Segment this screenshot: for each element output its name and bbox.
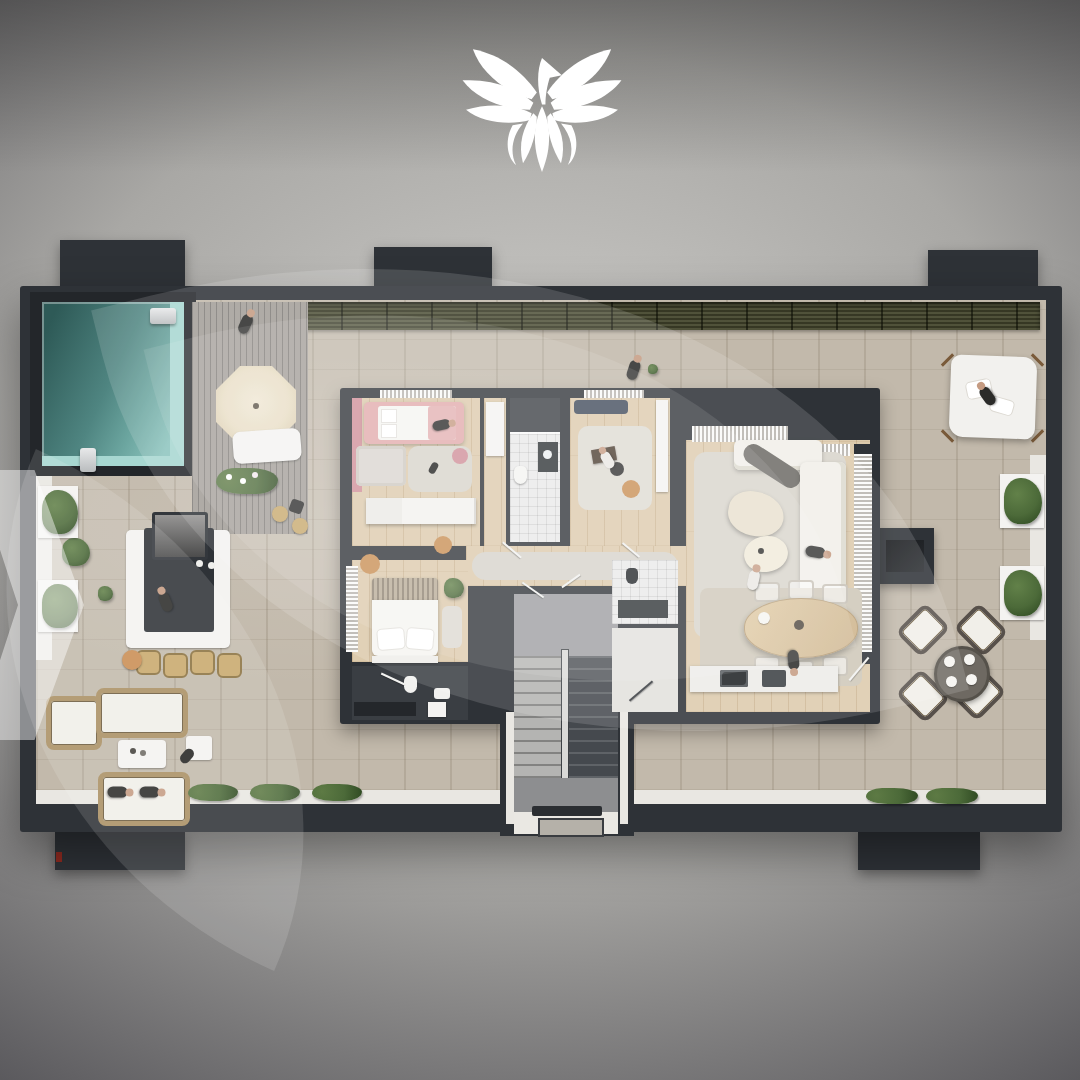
master-pillow: [376, 627, 406, 651]
wc-floor: [612, 628, 678, 712]
entry-door: [532, 806, 602, 816]
fireplace-glass: [886, 540, 924, 572]
planter-box: [312, 784, 362, 801]
patio-table: [934, 646, 990, 702]
deck-flower-planter: [216, 468, 278, 494]
render-canvas: { "meta": { "description": "Top-down 3D …: [0, 0, 1080, 1080]
pink-pouf: [452, 448, 468, 464]
master-shutters: [346, 566, 358, 652]
hedge-row: [296, 302, 1040, 330]
pool-ladder-icon: [150, 308, 176, 324]
plate: [964, 654, 975, 665]
dining-chair: [788, 580, 814, 600]
wicker-sofa: [98, 772, 190, 826]
wicker-armchair: [46, 696, 102, 750]
shower-glass-line: [510, 432, 560, 434]
bar-appliance: [152, 512, 208, 560]
stair-flight-down: [566, 656, 618, 778]
office-window-blind: [584, 390, 644, 398]
potted-plant: [62, 538, 90, 566]
kids-pillow: [381, 424, 397, 438]
stair-railing: [562, 650, 568, 784]
kitchen-sink-icon: [762, 670, 786, 687]
kids-pillow: [381, 409, 397, 423]
stair-flight-up: [514, 656, 566, 778]
glass-wall-frame: [854, 444, 872, 454]
stairwell-side-wall: [620, 712, 628, 824]
kids-wardrobe: [366, 498, 476, 524]
planter-box: [188, 784, 238, 801]
toilet-dark-icon: [626, 568, 638, 584]
pool-ladder-2-icon: [80, 448, 96, 472]
potted-flowers: [98, 586, 113, 601]
bed-bench: [372, 656, 438, 663]
tan-chair: [434, 536, 452, 554]
parapet-block-top-left: [60, 240, 185, 292]
ensuite-vanity: [354, 702, 416, 716]
kids-daybed: [356, 446, 406, 486]
wicker-sofa: [96, 688, 188, 738]
bistro-stool: [292, 518, 308, 534]
master-pillow: [405, 627, 435, 651]
plate: [946, 676, 957, 687]
bedroom-plant: [444, 578, 464, 598]
red-utility-mark: [56, 852, 62, 862]
vanity-sink-icon: [543, 450, 552, 459]
hall-cabinet: [486, 402, 504, 456]
eagle-wings-spread-icon: [447, 26, 637, 190]
shower-enclosure: [510, 398, 560, 432]
office-cabinet: [656, 400, 668, 492]
wall-planter-bush: [42, 490, 78, 534]
bedroom-rug: [442, 606, 462, 648]
cooktop-icon: [720, 670, 748, 687]
wall-planter-bush: [42, 584, 78, 628]
wall-planter-bush: [1004, 570, 1042, 616]
laundry-box: [428, 702, 446, 717]
entry-doormat: [538, 818, 604, 837]
tan-lounge-chair: [122, 650, 142, 670]
ensuite-sink-icon: [434, 688, 450, 699]
parapet-block-bottom-right: [858, 830, 980, 870]
parasol-pole-icon: [253, 403, 259, 409]
plate: [944, 656, 955, 667]
kids-window-blind: [380, 390, 452, 398]
bistro-stool: [272, 506, 288, 522]
parapet-block-bottom-left: [55, 830, 185, 870]
planter-box: [926, 788, 978, 804]
sun-lounger: [232, 428, 302, 465]
tan-chair: [360, 554, 380, 574]
tray-decor: [130, 748, 136, 754]
bar-stool: [163, 653, 188, 678]
bathroom2-vanity: [618, 600, 668, 618]
tan-armchair: [622, 480, 640, 498]
bar-stool: [217, 653, 242, 678]
lounge-coffee-table: [118, 740, 166, 768]
plate: [758, 612, 770, 624]
planter-box: [866, 788, 918, 804]
planter-box: [250, 784, 300, 801]
table-decor: [758, 548, 764, 554]
parapet-block-top-middle: [374, 247, 492, 291]
master-bed-throw: [372, 578, 438, 602]
person-lounging: [140, 787, 160, 798]
brand-logo: [447, 26, 637, 190]
person-in-kitchen: [787, 650, 800, 671]
stairwell-side-wall: [506, 712, 514, 824]
table-centerpiece: [794, 620, 804, 630]
deck-flowers: [226, 474, 232, 480]
stair-upper-landing: [514, 594, 618, 656]
pool-water: [42, 302, 184, 466]
bar-sink-icon: [196, 560, 203, 567]
terrace-plant-small: [648, 364, 658, 374]
navy-sofa: [574, 400, 628, 414]
person-lounging: [108, 787, 128, 798]
toilet-icon: [404, 676, 417, 693]
toilet-icon: [514, 466, 527, 484]
plate: [966, 674, 977, 685]
wall-planter-bush: [1004, 478, 1042, 524]
bar-stool: [190, 650, 215, 675]
